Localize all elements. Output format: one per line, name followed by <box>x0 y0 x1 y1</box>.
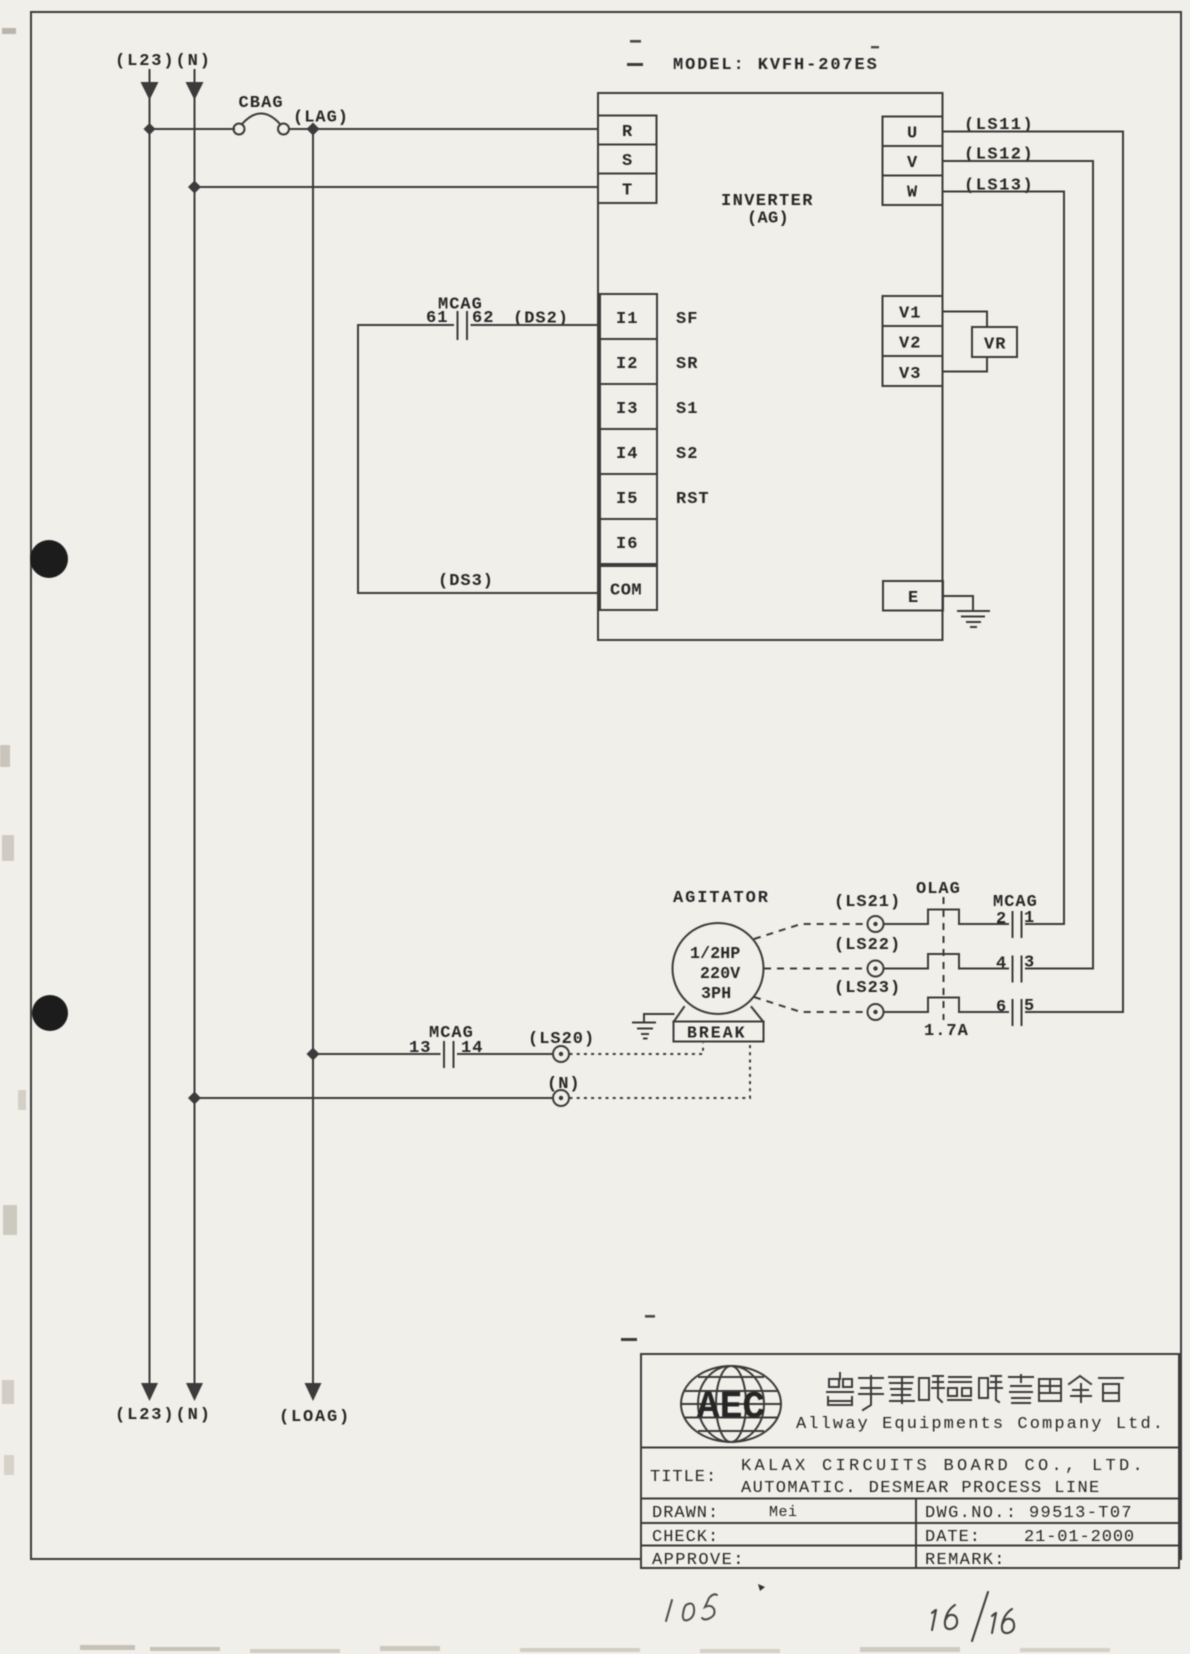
svg-text:I1: I1 <box>616 310 638 329</box>
svg-text:I2: I2 <box>616 355 638 374</box>
svg-text:MCAG: MCAG <box>993 893 1038 912</box>
svg-text:(L23)(N): (L23)(N) <box>115 1406 212 1425</box>
svg-text:Mei: Mei <box>769 1504 798 1521</box>
svg-text:5: 5 <box>1024 997 1034 1016</box>
svg-text:(LS13): (LS13) <box>964 177 1034 196</box>
svg-text:AUTOMATIC. DESMEAR PROCESS LIN: AUTOMATIC. DESMEAR PROCESS LINE <box>741 1479 1101 1498</box>
svg-text:220V: 220V <box>700 964 740 983</box>
svg-text:I5: I5 <box>616 490 638 509</box>
svg-text:W: W <box>907 184 918 203</box>
svg-text:MODEL: KVFH-207ES: MODEL: KVFH-207ES <box>673 56 879 75</box>
svg-text:1.7A: 1.7A <box>924 1022 969 1041</box>
svg-text:21-01-2000: 21-01-2000 <box>1024 1528 1135 1547</box>
svg-text:(LS21): (LS21) <box>834 893 901 912</box>
svg-text:VR: VR <box>984 336 1006 355</box>
svg-text:14: 14 <box>461 1039 483 1058</box>
svg-text:2: 2 <box>996 910 1006 929</box>
svg-text:V3: V3 <box>899 365 921 384</box>
svg-text:(DS3): (DS3) <box>438 572 494 591</box>
svg-text:INVERTER: INVERTER <box>721 192 814 211</box>
svg-text:(L23)(N): (L23)(N) <box>115 52 212 71</box>
svg-text:REMARK:: REMARK: <box>925 1551 1006 1570</box>
svg-text:TITLE:: TITLE: <box>650 1468 717 1487</box>
svg-text:OLAG: OLAG <box>916 880 961 899</box>
svg-text:AGITATOR: AGITATOR <box>673 889 770 908</box>
svg-text:6: 6 <box>996 998 1006 1017</box>
svg-text:COM: COM <box>610 582 642 601</box>
svg-text:BREAK: BREAK <box>687 1024 747 1043</box>
svg-text:AEC: AEC <box>697 1386 765 1429</box>
svg-text:E: E <box>908 589 918 608</box>
svg-text:APPROVE:: APPROVE: <box>652 1551 745 1570</box>
svg-text:S: S <box>622 152 632 171</box>
svg-text:RST: RST <box>676 490 710 509</box>
svg-text:DRAWN:: DRAWN: <box>652 1504 719 1523</box>
svg-text:Allway Equipments Company Ltd.: Allway Equipments Company Ltd. <box>796 1415 1165 1434</box>
svg-text:(AG): (AG) <box>747 210 789 229</box>
svg-text:I6: I6 <box>616 535 638 554</box>
svg-text:S2: S2 <box>676 445 698 464</box>
svg-text:(LAG): (LAG) <box>293 109 349 128</box>
svg-text:T: T <box>622 182 632 201</box>
svg-text:S1: S1 <box>676 400 698 419</box>
svg-text:DATE:: DATE: <box>925 1528 981 1547</box>
svg-text:SF: SF <box>676 310 698 329</box>
svg-text:KALAX CIRCUITS BOARD CO., LTD.: KALAX CIRCUITS BOARD CO., LTD. <box>741 1457 1146 1476</box>
svg-text:3PH: 3PH <box>701 984 731 1003</box>
svg-text:DWG.NO.: 99513-T07: DWG.NO.: 99513-T07 <box>925 1504 1133 1523</box>
svg-text:(LOAG): (LOAG) <box>279 1408 351 1427</box>
svg-text:V1: V1 <box>899 305 921 324</box>
svg-text:I4: I4 <box>616 445 638 464</box>
svg-text:R: R <box>622 123 633 142</box>
svg-text:V: V <box>907 154 918 173</box>
svg-text:I3: I3 <box>616 400 638 419</box>
svg-text:CHECK:: CHECK: <box>652 1528 719 1547</box>
svg-text:SR: SR <box>676 355 698 374</box>
svg-text:V2: V2 <box>899 335 921 354</box>
svg-text:U: U <box>907 125 917 144</box>
svg-text:1/2HP: 1/2HP <box>690 944 741 963</box>
svg-text:4: 4 <box>996 955 1006 974</box>
svg-text:(LS23): (LS23) <box>834 979 901 998</box>
svg-text:13: 13 <box>409 1039 431 1058</box>
svg-text:CBAG: CBAG <box>239 94 284 113</box>
svg-text:3: 3 <box>1024 954 1034 973</box>
svg-text:(LS22): (LS22) <box>834 936 901 955</box>
